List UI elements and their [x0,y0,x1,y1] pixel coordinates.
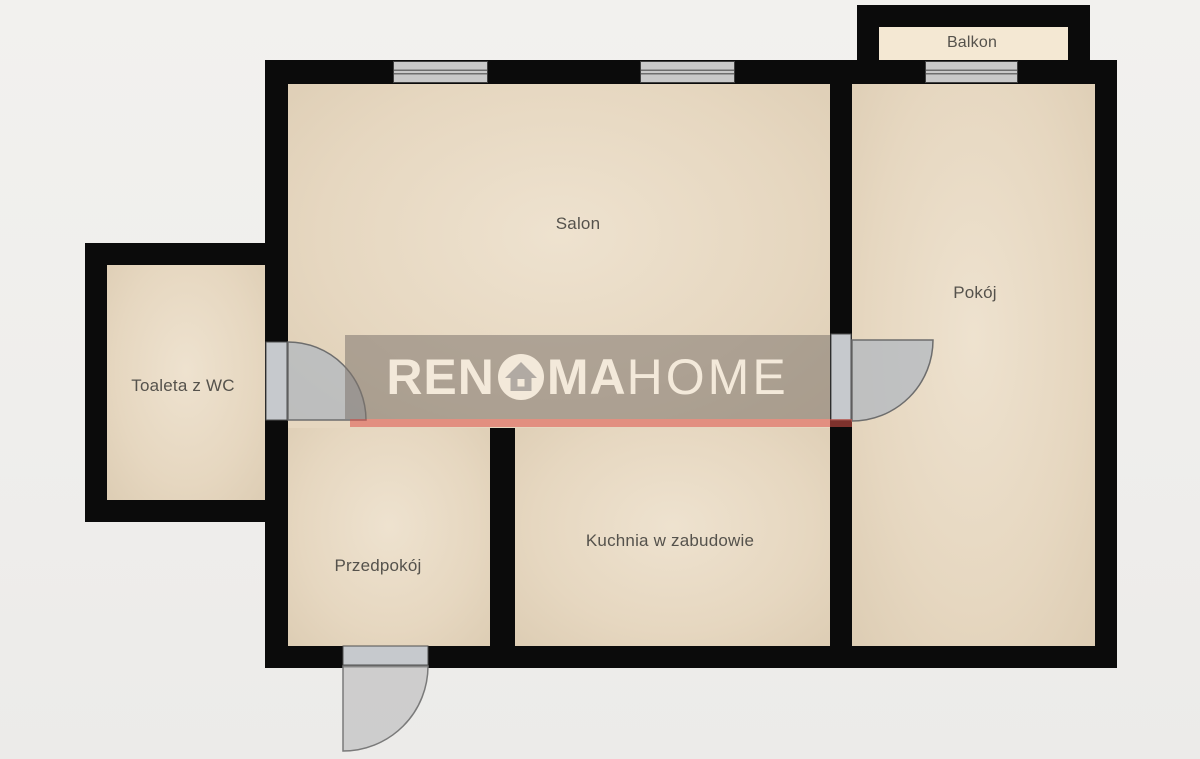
watermark-text-ma: MA [547,352,627,402]
watermark-text-ren: REN [386,352,495,402]
salon-window-1-icon [393,61,488,83]
watermark: REN MA HOME [345,335,830,419]
label-salon: Salon [556,214,600,234]
red-partition-line [350,419,852,427]
floor-plan: REN MA HOME Salon Pokój Toaleta z WC Prz… [0,0,1200,759]
label-kuchnia: Kuchnia w zabudowie [586,531,754,551]
room-pokoj [852,84,1095,646]
house-in-circle-icon [497,353,545,401]
watermark-text-home: HOME [627,352,789,402]
label-toaleta: Toaleta z WC [131,376,235,396]
balcony-door-icon [925,61,1018,83]
label-pokoj: Pokój [953,283,997,303]
room-przedpokoj [288,428,490,646]
label-balkon: Balkon [947,34,997,52]
label-przedpokoj: Przedpokój [334,556,421,576]
salon-window-2-icon [640,61,735,83]
